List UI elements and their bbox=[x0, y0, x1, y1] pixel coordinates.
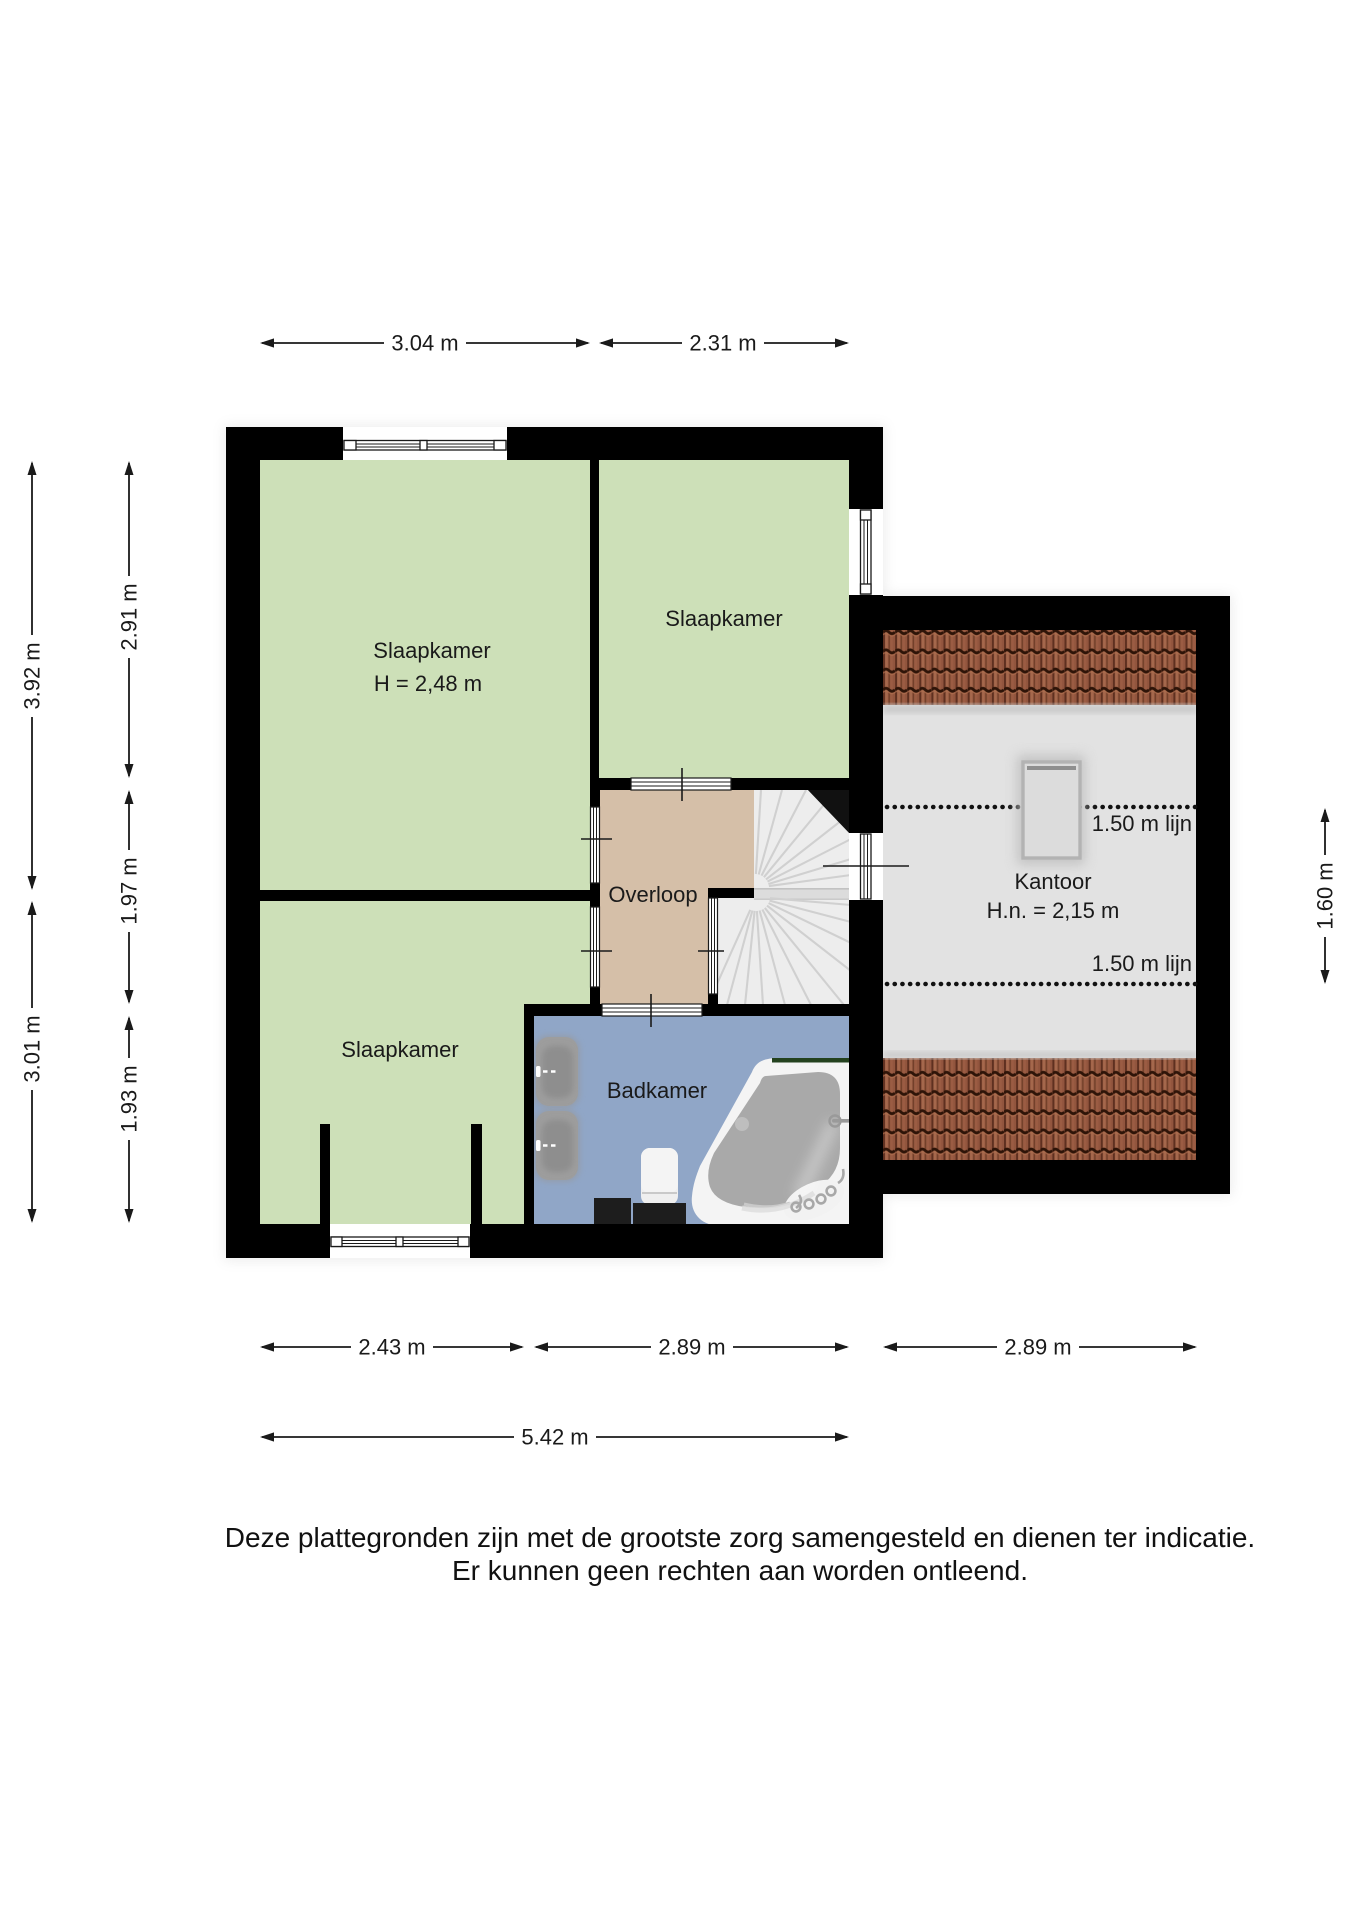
svg-text:2.43 m: 2.43 m bbox=[358, 1335, 425, 1360]
svg-text:1.93 m: 1.93 m bbox=[117, 1065, 142, 1132]
svg-text:Slaapkamer: Slaapkamer bbox=[665, 606, 782, 631]
svg-text:H = 2,48 m: H = 2,48 m bbox=[374, 671, 482, 696]
svg-text:1.60 m: 1.60 m bbox=[1313, 862, 1338, 929]
svg-text:Kantoor: Kantoor bbox=[1014, 869, 1091, 894]
svg-text:2.31 m: 2.31 m bbox=[689, 331, 756, 356]
svg-text:Slaapkamer: Slaapkamer bbox=[373, 638, 490, 663]
svg-text:1.97 m: 1.97 m bbox=[117, 857, 142, 924]
svg-text:Deze plattegronden zijn met de: Deze plattegronden zijn met de grootste … bbox=[225, 1522, 1255, 1553]
svg-text:3.04 m: 3.04 m bbox=[391, 331, 458, 356]
svg-text:3.01 m: 3.01 m bbox=[20, 1015, 45, 1082]
svg-text:H.n. = 2,15 m: H.n. = 2,15 m bbox=[987, 898, 1120, 923]
svg-text:2.89 m: 2.89 m bbox=[1004, 1335, 1071, 1360]
svg-text:3.92 m: 3.92 m bbox=[20, 642, 45, 709]
svg-text:Slaapkamer: Slaapkamer bbox=[341, 1037, 458, 1062]
svg-text:2.89 m: 2.89 m bbox=[658, 1335, 725, 1360]
svg-text:Badkamer: Badkamer bbox=[607, 1078, 707, 1103]
svg-text:5.42 m: 5.42 m bbox=[521, 1425, 588, 1450]
svg-text:Er kunnen geen rechten aan wor: Er kunnen geen rechten aan worden ontlee… bbox=[452, 1555, 1028, 1586]
svg-text:1.50 m lijn: 1.50 m lijn bbox=[1092, 951, 1192, 976]
svg-text:1.50 m lijn: 1.50 m lijn bbox=[1092, 811, 1192, 836]
svg-text:Overloop: Overloop bbox=[608, 882, 697, 907]
svg-text:2.91 m: 2.91 m bbox=[117, 583, 142, 650]
